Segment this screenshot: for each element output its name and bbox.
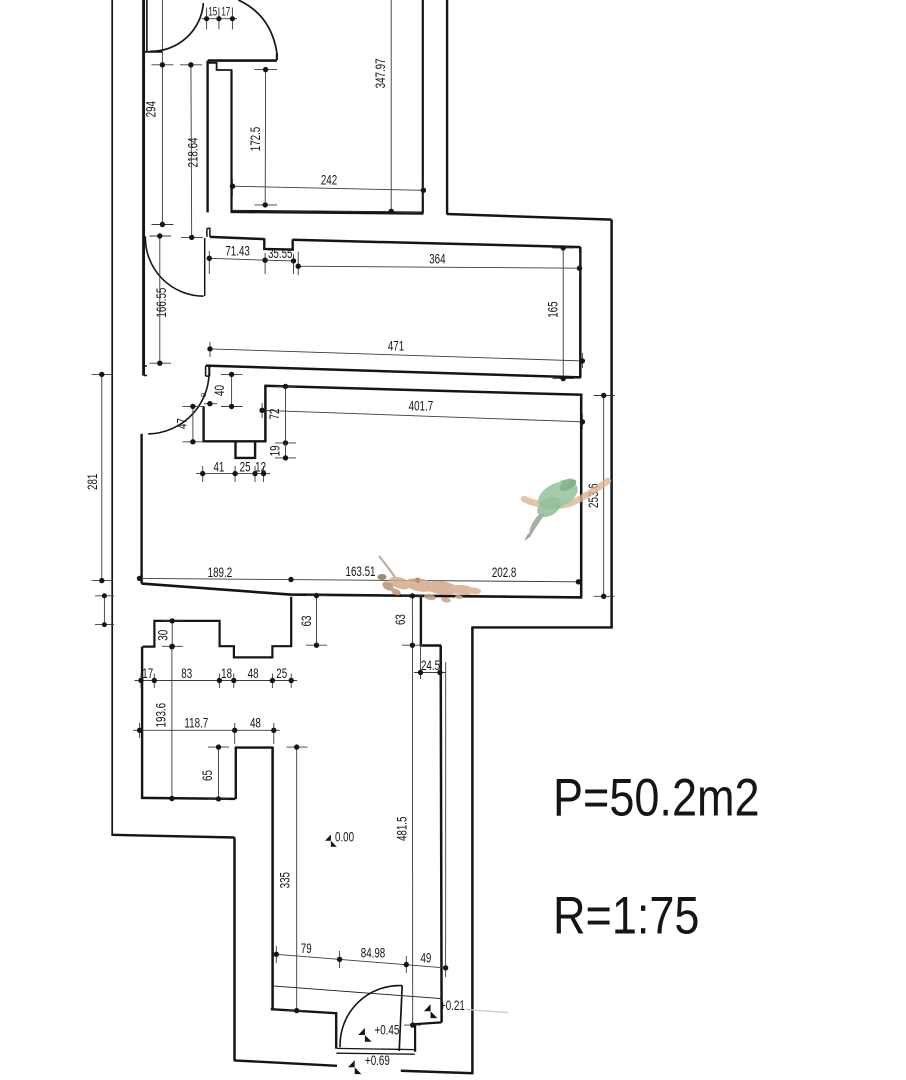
svg-text:202.8: 202.8 (492, 564, 517, 580)
svg-text:163.51: 163.51 (346, 563, 376, 579)
svg-text:12: 12 (255, 459, 266, 475)
svg-text:84.98: 84.98 (361, 945, 386, 961)
svg-text:17: 17 (221, 6, 230, 19)
svg-text:48: 48 (250, 715, 261, 731)
svg-text:9: 9 (199, 393, 208, 397)
svg-text:481.5: 481.5 (394, 816, 410, 841)
svg-text:471: 471 (388, 338, 405, 354)
svg-text:18: 18 (221, 665, 232, 681)
svg-text:35.55: 35.55 (268, 245, 293, 261)
svg-text:+0.21: +0.21 (440, 997, 465, 1013)
svg-text:83: 83 (181, 665, 192, 681)
svg-text:+0.45: +0.45 (375, 1022, 400, 1038)
svg-text:118.7: 118.7 (184, 715, 208, 731)
svg-text:P=50.2m2: P=50.2m2 (553, 768, 760, 827)
svg-text:47: 47 (174, 418, 190, 429)
svg-text:41: 41 (213, 459, 224, 475)
svg-text:24.5: 24.5 (421, 657, 440, 673)
svg-text:49: 49 (420, 950, 431, 966)
svg-text:79: 79 (301, 940, 312, 956)
svg-text:48: 48 (248, 665, 259, 681)
svg-text:364: 364 (429, 251, 446, 267)
svg-text:40: 40 (211, 385, 227, 396)
svg-text:25: 25 (240, 459, 251, 475)
svg-text:218.64: 218.64 (185, 137, 201, 167)
svg-text:30: 30 (155, 630, 171, 641)
svg-text:281: 281 (84, 473, 100, 490)
svg-text:63: 63 (392, 614, 408, 625)
svg-text:189.2: 189.2 (208, 564, 233, 580)
svg-text:165: 165 (545, 301, 561, 318)
svg-text:172.5: 172.5 (247, 127, 263, 152)
svg-text:335: 335 (277, 872, 293, 889)
svg-text:166.55: 166.55 (153, 287, 169, 317)
svg-text:25: 25 (276, 665, 287, 681)
svg-text:63: 63 (298, 615, 314, 626)
svg-text:193.6: 193.6 (153, 703, 169, 728)
svg-text:19: 19 (267, 445, 283, 456)
svg-text:401.7: 401.7 (409, 398, 434, 414)
svg-text:242: 242 (321, 172, 338, 188)
svg-text:72: 72 (266, 408, 282, 419)
svg-text:+0.69: +0.69 (365, 1052, 390, 1068)
svg-text:15: 15 (208, 6, 217, 19)
svg-text:347.97: 347.97 (372, 58, 388, 88)
svg-text:17: 17 (142, 665, 153, 681)
svg-text:294: 294 (143, 101, 159, 118)
svg-text:R=1:75: R=1:75 (553, 886, 699, 945)
svg-text:0.00: 0.00 (335, 829, 354, 845)
svg-text:65: 65 (199, 770, 215, 781)
svg-text:71.43: 71.43 (225, 243, 250, 259)
